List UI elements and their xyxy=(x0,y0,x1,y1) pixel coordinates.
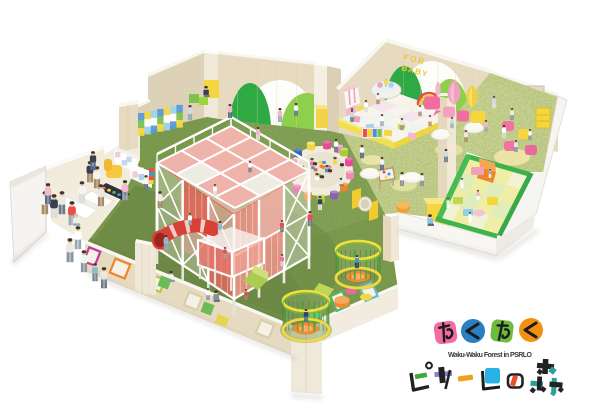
svg-text:Waku-Waku Forest in PSRLO: Waku-Waku Forest in PSRLO xyxy=(448,352,533,359)
